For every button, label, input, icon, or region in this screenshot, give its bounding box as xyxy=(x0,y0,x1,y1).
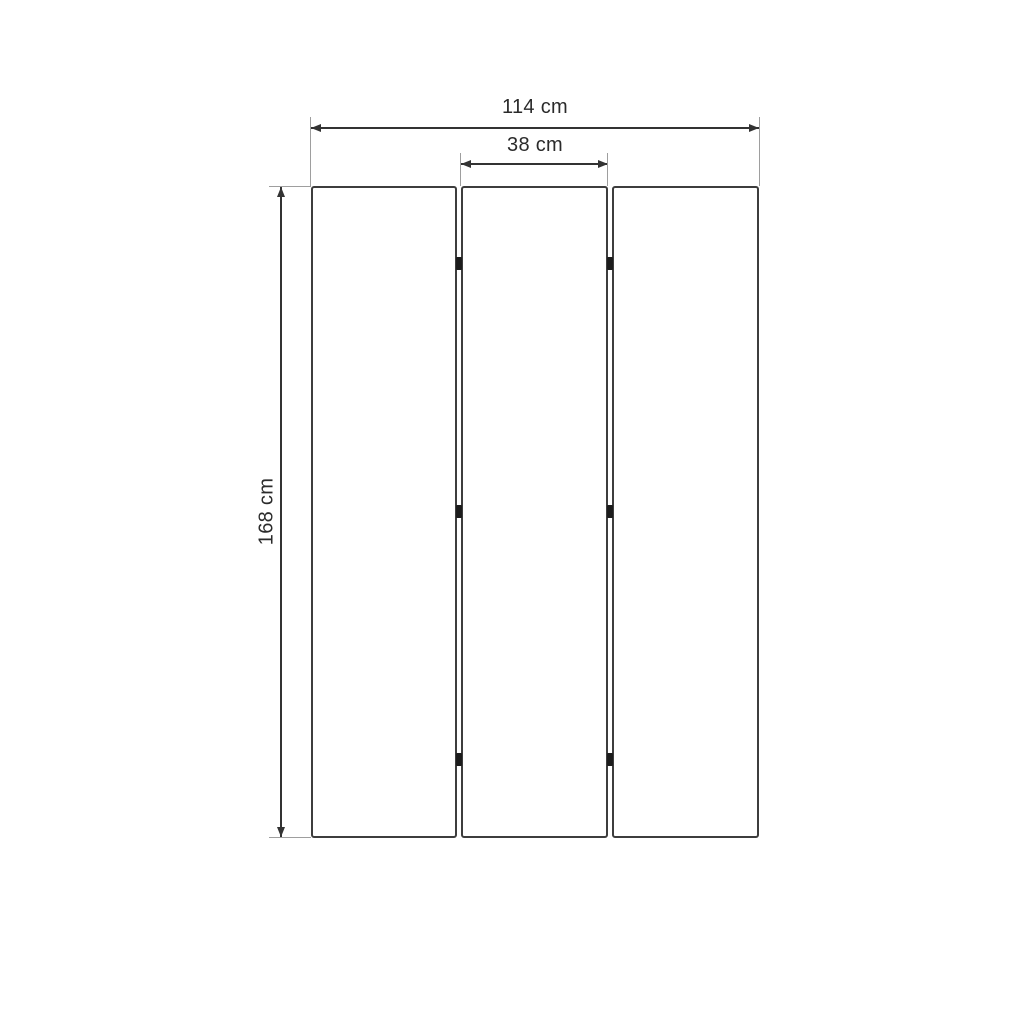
extension-line-total-width-left xyxy=(310,117,311,186)
extension-line-panel-width-left xyxy=(460,153,461,186)
arrowhead-left-icon xyxy=(461,160,471,168)
panel-center xyxy=(461,186,608,838)
extension-line-height-bottom xyxy=(269,837,311,838)
panel-right xyxy=(612,186,759,838)
panel-left xyxy=(311,186,457,838)
hinge-mark xyxy=(607,257,613,270)
hinge-mark xyxy=(607,753,613,766)
height-dimension-line xyxy=(280,187,282,837)
extension-line-height-top xyxy=(269,186,311,187)
arrowhead-down-icon xyxy=(277,827,285,837)
height-label: 168 cm xyxy=(256,452,279,572)
hinge-mark xyxy=(607,505,613,518)
hinge-mark xyxy=(456,505,462,518)
total-width-dimension-line xyxy=(311,127,759,129)
panel-width-label: 38 cm xyxy=(435,134,635,157)
hinge-mark xyxy=(456,753,462,766)
extension-line-total-width-right xyxy=(759,117,760,186)
total-width-label: 114 cm xyxy=(435,96,635,119)
arrowhead-left-icon xyxy=(311,124,321,132)
panel-width-dimension-line xyxy=(461,163,608,165)
extension-line-panel-width-right xyxy=(607,153,608,186)
hinge-mark xyxy=(456,257,462,270)
arrowhead-right-icon xyxy=(749,124,759,132)
arrowhead-up-icon xyxy=(277,187,285,197)
dimension-diagram: 114 cm 38 cm 168 cm xyxy=(0,0,1024,1024)
